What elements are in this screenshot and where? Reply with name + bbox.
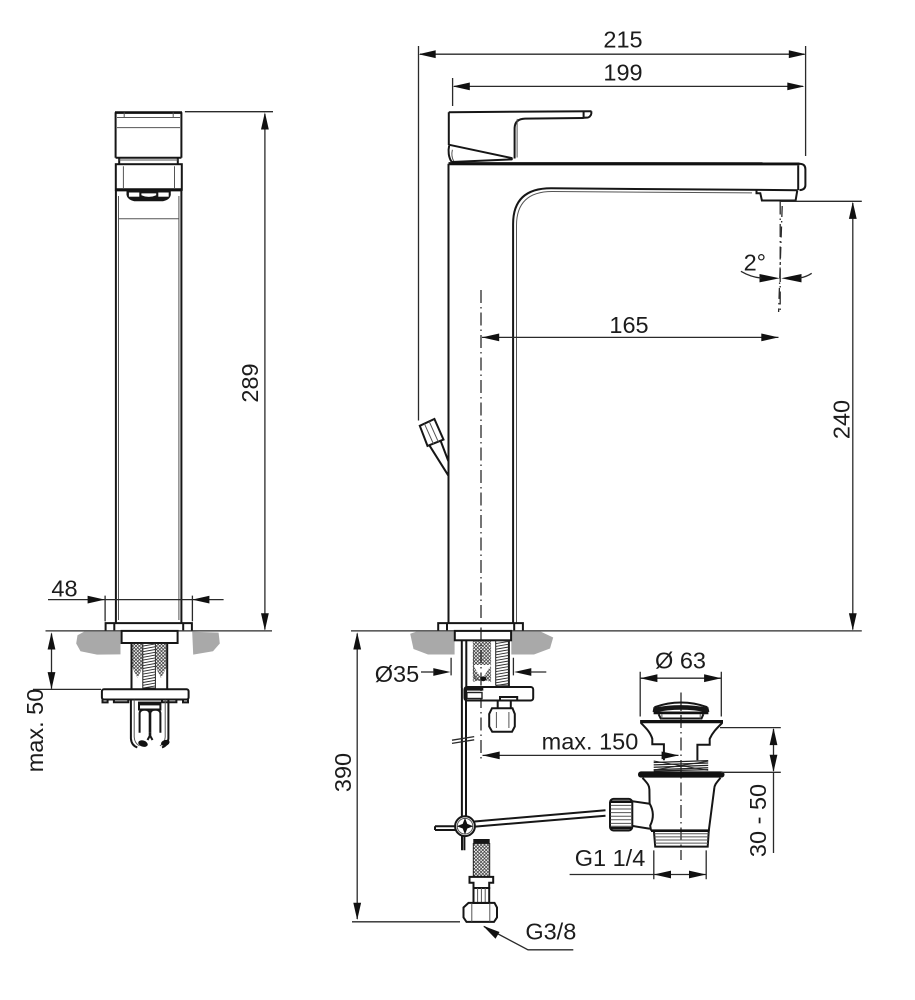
svg-text:390: 390 bbox=[330, 753, 356, 792]
svg-text:30 - 50: 30 - 50 bbox=[745, 784, 771, 857]
svg-text:2°: 2° bbox=[744, 249, 766, 275]
svg-text:165: 165 bbox=[609, 312, 648, 338]
svg-text:Ø 63: Ø 63 bbox=[655, 648, 706, 674]
svg-text:G3/8: G3/8 bbox=[525, 918, 576, 944]
svg-text:240: 240 bbox=[828, 400, 854, 439]
svg-text:max. 150: max. 150 bbox=[542, 729, 639, 755]
svg-text:max. 50: max. 50 bbox=[22, 689, 48, 773]
svg-text:48: 48 bbox=[51, 576, 77, 602]
svg-text:215: 215 bbox=[603, 26, 642, 52]
svg-text:289: 289 bbox=[237, 363, 263, 402]
svg-text:199: 199 bbox=[603, 59, 642, 85]
svg-text:G1 1/4: G1 1/4 bbox=[575, 845, 646, 871]
svg-text:Ø35: Ø35 bbox=[375, 661, 419, 687]
